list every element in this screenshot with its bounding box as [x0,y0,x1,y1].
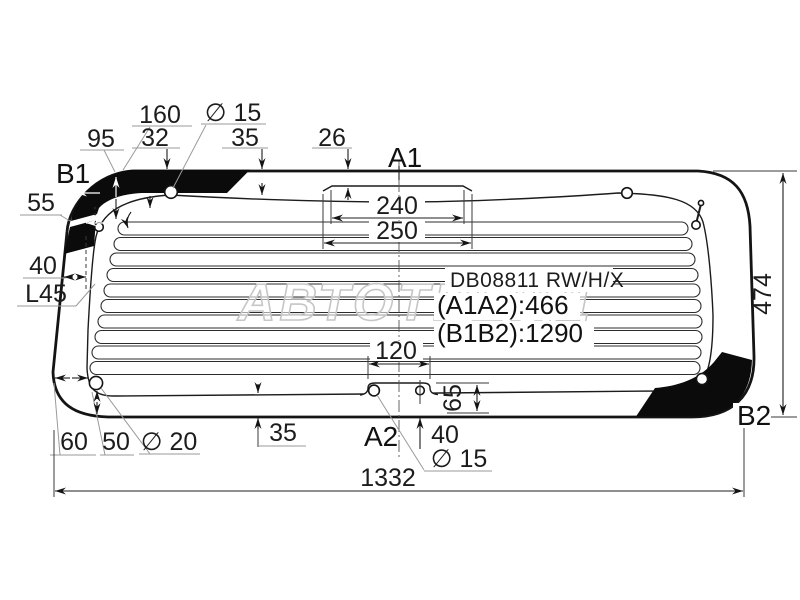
dim-label-65: 65 [439,384,467,412]
hole-bottom-right [696,373,707,384]
spec-a1a2: (A1A2):466 [437,290,569,320]
dot-mark [94,207,97,210]
dim-label-120: 120 [375,337,417,365]
defroster-line [110,253,695,266]
dim-label-1332: 1332 [360,464,416,492]
part-code: DB08811 RW/H/X [450,269,624,292]
leader-95 [104,150,115,172]
rear-glass-technical-drawing: АВТОТРЕЙД [0,0,800,600]
dim-label-d15-top: ∅ 15 [205,99,262,127]
pivot-pin-bottom [692,221,700,229]
dim-label-240: 240 [376,192,418,220]
dim-label-l45: L45 [25,280,67,308]
point-label-b1: B1 [56,158,90,189]
dim-label-50: 50 [102,428,130,456]
dim-label-95: 95 [87,125,115,153]
dim-label-d15-bottom: ∅ 15 [431,445,488,473]
hole-top-left-d15 [165,186,178,199]
point-label-b2: B2 [737,400,771,431]
dim-label-60: 60 [60,428,88,456]
point-label-a1: A1 [388,142,422,173]
pivot-pin-top [698,200,703,205]
dim-label-55: 55 [27,189,55,217]
dim-label-35-bottom: 35 [269,419,297,447]
dim-label-26: 26 [318,124,346,152]
dim-label-d20: ∅ 20 [141,428,198,456]
hole-left-small [95,223,104,232]
point-label-a2: A2 [364,421,398,452]
dot-mark [94,213,97,216]
dim-label-35-top: 35 [231,124,259,152]
hole-bottom-left-d20 [89,376,102,389]
hole-top-right [622,188,633,199]
dim-label-40-left: 40 [29,252,57,280]
dim-label-250: 250 [376,217,418,245]
dim-label-474: 474 [749,273,777,315]
dim-label-32: 32 [141,124,169,152]
hole-plate-left-d15 [369,385,380,396]
spec-b1b2: (B1B2):1290 [437,318,583,348]
